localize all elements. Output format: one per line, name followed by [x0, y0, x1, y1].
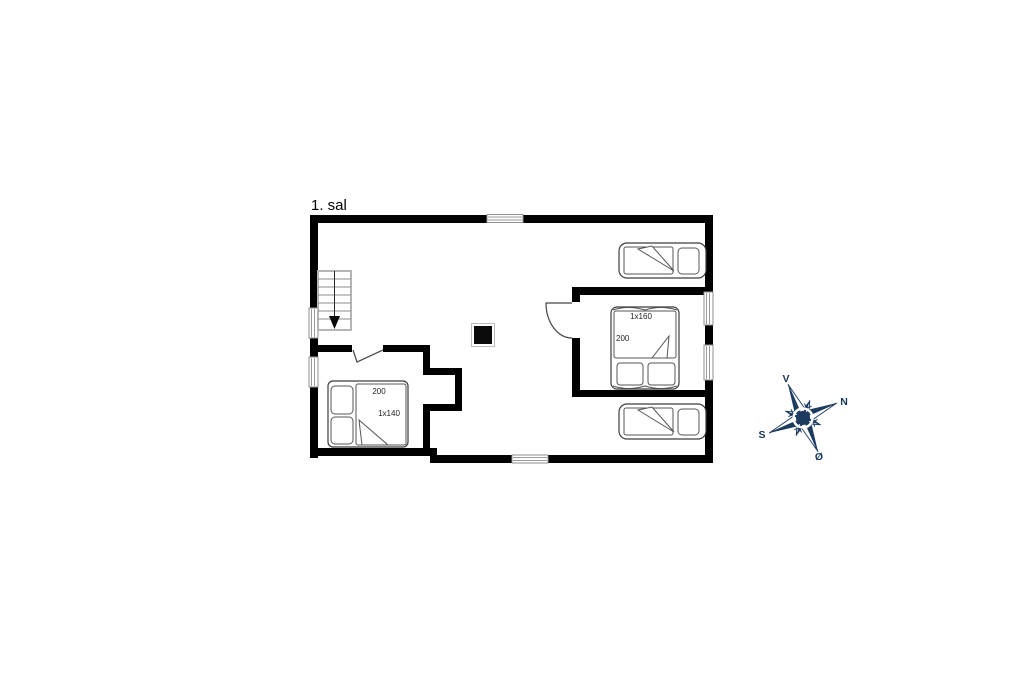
- door-right-bedroom: [546, 303, 572, 338]
- compass-label-n: N: [840, 396, 848, 408]
- bed-size-label-right: 1x160: [630, 312, 652, 321]
- floorplan-page: 1. sal 200 1x140 1x160 200: [0, 0, 1024, 682]
- stairs-icon: [318, 271, 351, 330]
- bed-size-label-left: 1x140: [378, 409, 400, 418]
- compass-label-s: S: [758, 429, 765, 441]
- floorplan-drawing: 1. sal 200 1x140 1x160 200: [0, 0, 1024, 682]
- single-bed-top: [619, 243, 706, 278]
- compass-label-o: Ø: [815, 451, 823, 463]
- floor-title: 1. sal: [311, 197, 347, 214]
- window-symbol-right-upper: [704, 292, 713, 325]
- bed-length-label-right: 200: [616, 334, 630, 343]
- chimney-icon: [472, 324, 495, 347]
- bed-length-label-left: 200: [372, 387, 386, 396]
- window-symbol-top: [487, 215, 523, 223]
- single-bed-bottom: [619, 404, 706, 439]
- window-symbol-bottom: [512, 455, 548, 463]
- compass-rose-icon: V N S Ø: [754, 369, 852, 467]
- compass-label-v: V: [782, 373, 789, 385]
- window-symbol-left-lower: [309, 357, 318, 387]
- window-symbol-right-lower: [704, 345, 713, 380]
- door-left-bedroom: [353, 350, 383, 362]
- window-symbol-left-upper: [309, 308, 318, 338]
